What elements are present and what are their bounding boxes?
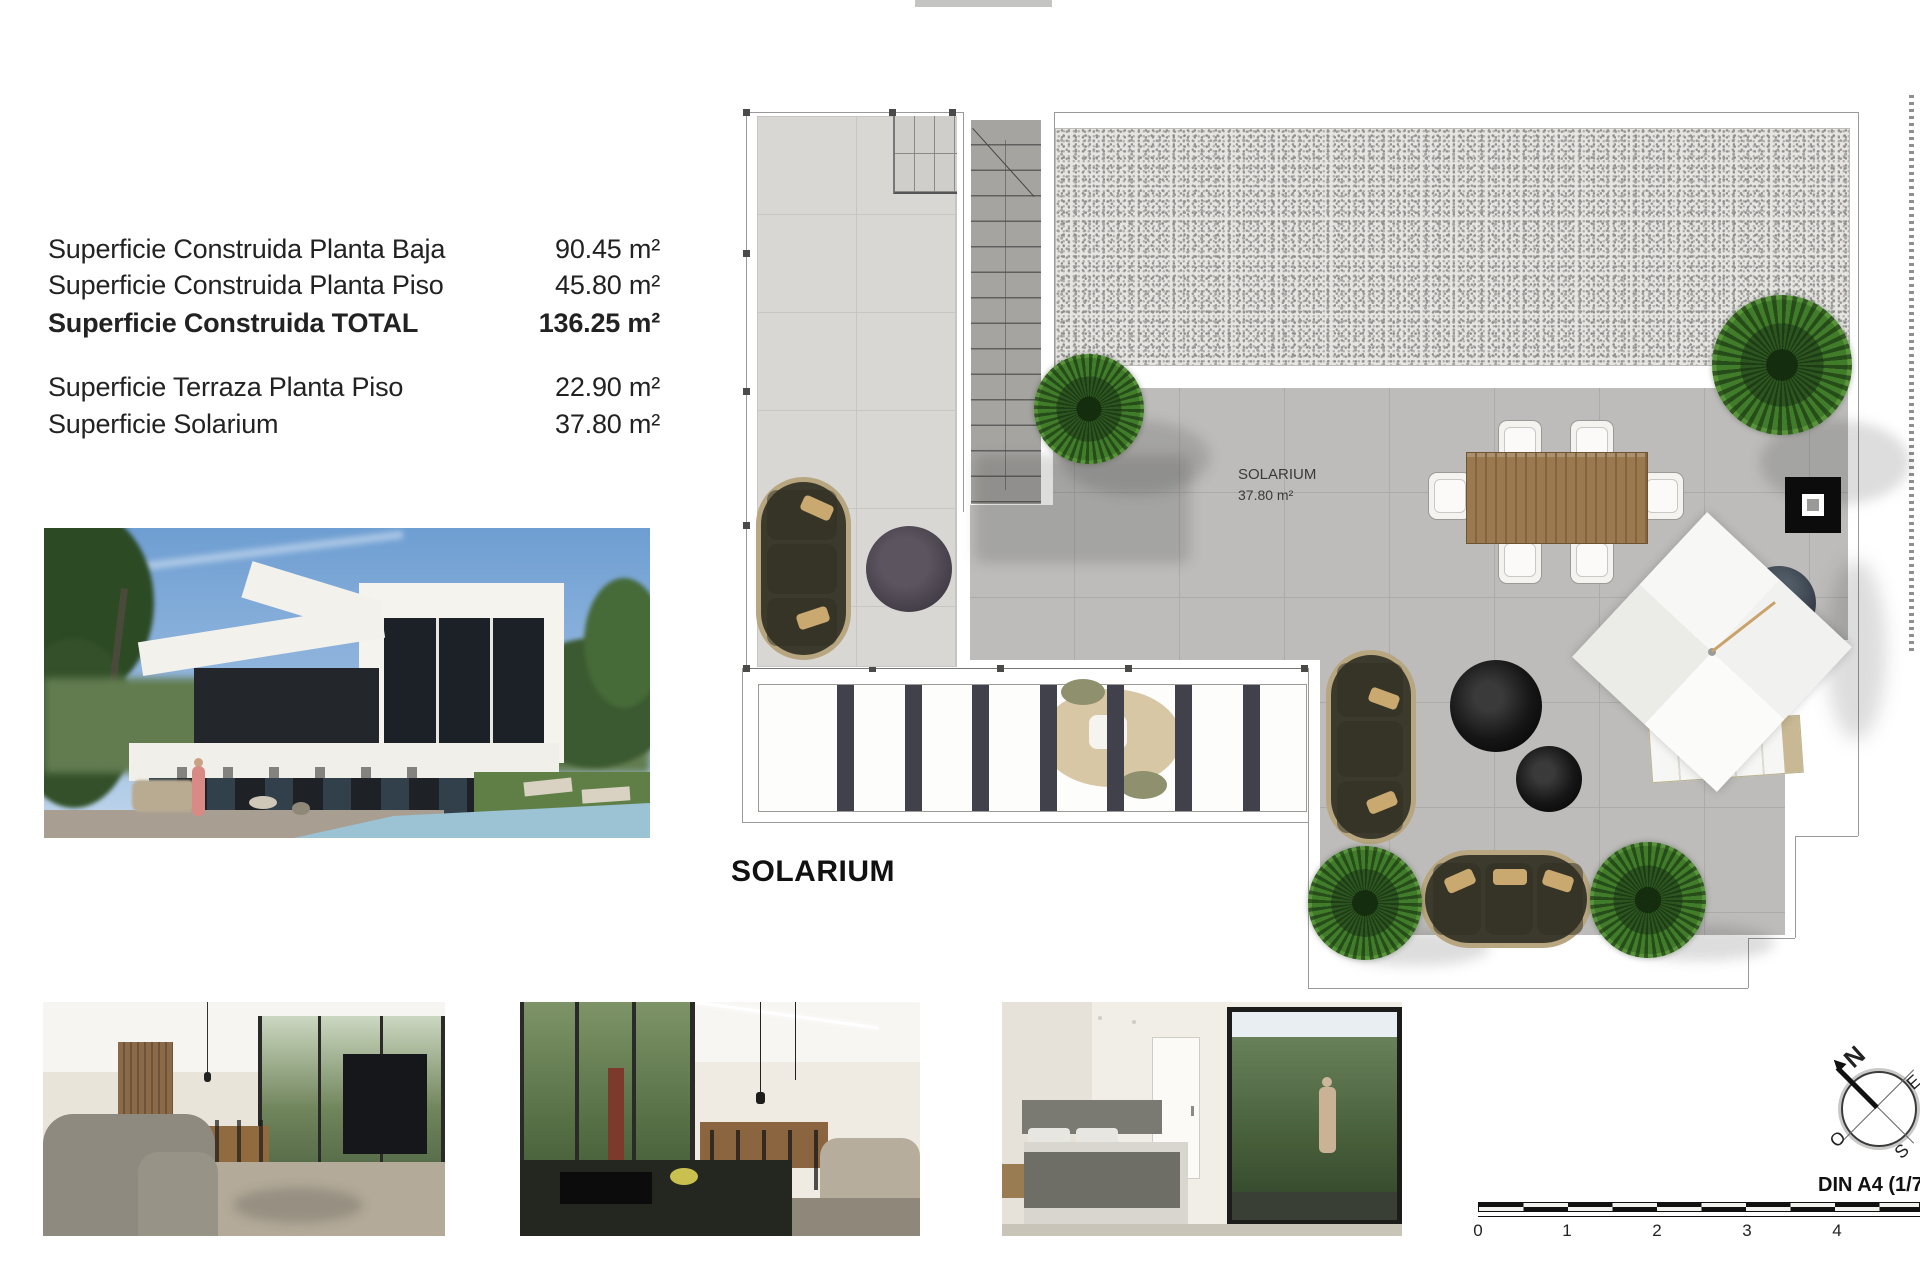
room-label-name: SOLARIUM — [1238, 465, 1316, 485]
person-figure — [192, 766, 205, 816]
lounge-sofa-bottom — [1420, 850, 1592, 948]
compass-south-label: S — [1891, 1140, 1914, 1164]
stair-diagonal — [972, 128, 1034, 197]
pendant-lamp — [756, 1092, 765, 1104]
area-value: 22.90 m² — [555, 372, 660, 403]
dining-table — [1466, 452, 1648, 544]
pendant-cord — [760, 1002, 761, 1094]
patio-table — [249, 796, 277, 809]
area-label: Superficie Construida TOTAL — [48, 308, 418, 339]
balcony-slots — [141, 767, 451, 778]
table-row: Superficie Solarium 37.80 m² — [48, 409, 660, 440]
scale-baseline — [1478, 1216, 1920, 1217]
person-figure — [1319, 1087, 1336, 1153]
pergola-slat — [837, 685, 854, 811]
area-label: Superficie Construida Planta Piso — [48, 270, 444, 301]
area-label: Superficie Solarium — [48, 409, 278, 440]
table-row: Superficie Construida Planta Piso 45.80 … — [48, 270, 660, 301]
lounge-sofa-left — [1326, 650, 1416, 844]
pendant-cord — [207, 1002, 208, 1074]
plan-sheet-page: Superficie Construida Planta Baja 90.45 … — [0, 0, 1920, 1280]
garden-view — [1232, 1037, 1397, 1192]
door-handle — [1191, 1106, 1194, 1116]
plant — [1712, 295, 1852, 435]
plant — [1034, 354, 1144, 464]
upper-window — [384, 618, 544, 748]
staircase — [971, 120, 1041, 504]
pergola-slat — [1175, 685, 1192, 811]
sheet-format-label: DIN A4 (1/75 — [1818, 1174, 1920, 1197]
plan-caption: SOLARIUM — [731, 855, 895, 889]
photo-interior-bedroom — [1002, 1002, 1402, 1236]
compass-north-label: N — [1839, 1041, 1872, 1075]
pergola-slat — [972, 685, 989, 811]
photo-interior-kitchen — [520, 1002, 920, 1236]
blanket — [1024, 1152, 1180, 1208]
room-label-area: 37.80 m² — [1238, 485, 1316, 505]
floor — [1002, 1224, 1402, 1236]
curved-sofa-terrace — [756, 477, 851, 660]
scale-bar-graphic — [1478, 1202, 1920, 1212]
scale-tick: 4 — [1822, 1221, 1852, 1241]
plan-outline — [742, 822, 1308, 823]
table-row: Superficie Terraza Planta Piso 22.90 m² — [48, 372, 660, 403]
floor-shadow — [233, 1187, 363, 1223]
person-head — [1322, 1077, 1332, 1087]
area-value: 90.45 m² — [555, 234, 660, 265]
pergola — [758, 684, 1307, 812]
pendant-cord — [795, 1002, 796, 1080]
spotlight — [1098, 1016, 1102, 1020]
sofa-arm — [138, 1152, 218, 1236]
patio-chairs — [132, 780, 196, 812]
terrace-floor-view — [1232, 1192, 1397, 1220]
room-label: SOLARIUM 37.80 m² — [1238, 465, 1316, 505]
round-black-table-large — [1450, 660, 1542, 752]
plan-outline — [1308, 988, 1748, 989]
scale-tick: 2 — [1642, 1221, 1672, 1241]
round-black-table-small — [1516, 746, 1582, 812]
nightstand — [1002, 1164, 1024, 1198]
cooktop — [560, 1172, 652, 1204]
plan-outline — [1795, 836, 1858, 837]
round-side-table — [866, 526, 952, 612]
roof-skylight-box — [1785, 477, 1841, 533]
pouf — [292, 802, 310, 815]
dimension-line — [746, 668, 1308, 669]
photo-interior-living — [43, 1002, 445, 1236]
stair-walk-line — [1005, 140, 1006, 490]
red-accent — [608, 1068, 624, 1160]
area-value: 136.25 m² — [539, 308, 660, 339]
sky-reflection — [1232, 1012, 1397, 1040]
plan-outline — [1308, 668, 1309, 988]
area-value: 45.80 m² — [555, 270, 660, 301]
spotlight — [1132, 1020, 1136, 1024]
stair-landing-grid — [893, 116, 957, 194]
pendant-lamp — [204, 1072, 211, 1082]
area-label: Superficie Construida Planta Baja — [48, 234, 445, 265]
house-volume-upper — [359, 583, 564, 763]
scale-tick: 0 — [1463, 1221, 1493, 1241]
glass-slider-frame — [1227, 1007, 1402, 1225]
pergola-slat — [1243, 685, 1260, 811]
tv-panel — [343, 1054, 427, 1154]
photo-villa-exterior — [44, 528, 650, 838]
fruit-bowl — [670, 1168, 698, 1185]
pergola-slat — [905, 685, 922, 811]
top-cut-fragment — [915, 0, 1052, 7]
fine-print-strip — [1909, 95, 1914, 655]
plant — [1308, 846, 1422, 960]
area-label: Superficie Terraza Planta Piso — [48, 372, 403, 403]
table-row-total: Superficie Construida TOTAL 136.25 m² — [48, 308, 660, 339]
pergola-slat — [1040, 685, 1057, 811]
table-row: Superficie Construida Planta Baja 90.45 … — [48, 234, 660, 265]
scale-tick: 1 — [1552, 1221, 1582, 1241]
floor — [790, 1198, 920, 1236]
pergola-slat — [1107, 685, 1124, 811]
compass-west-label: O — [1826, 1127, 1850, 1152]
area-value: 37.80 m² — [555, 409, 660, 440]
plan-outline — [742, 668, 743, 822]
plan-outline — [746, 112, 1858, 113]
plant — [1590, 842, 1706, 958]
scale-tick: 3 — [1732, 1221, 1762, 1241]
plan-outline — [1795, 836, 1796, 938]
